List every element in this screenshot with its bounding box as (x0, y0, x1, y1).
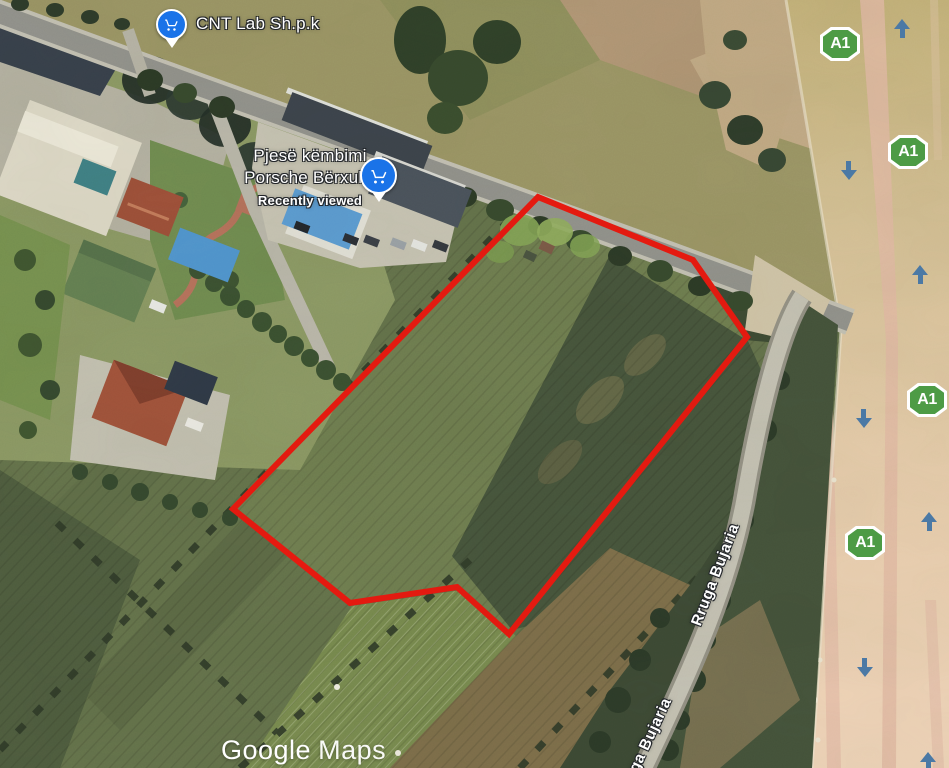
noise-layer (0, 0, 949, 768)
lane-arrow-down-icon (841, 159, 857, 180)
pin-pointer (372, 192, 386, 202)
highway-badge-a1: A1 (845, 526, 885, 560)
lane-arrow-up-icon (921, 512, 937, 533)
map-canvas[interactable]: CNT Lab Sh.p.k Pjesë këmbimi Porsche Bër… (0, 0, 949, 768)
shopping-cart-icon (360, 157, 397, 194)
pin-pointer (165, 38, 179, 48)
highway-badge-a1: A1 (820, 27, 860, 61)
place-label-cnt-lab[interactable]: CNT Lab Sh.p.k (196, 14, 319, 34)
shopping-cart-icon (156, 9, 187, 40)
watermark-product: Maps (318, 735, 386, 765)
watermark-brand: Google (221, 735, 311, 765)
lane-arrow-up-icon (912, 265, 928, 286)
satellite-imagery (0, 0, 949, 768)
porsche-pin[interactable] (360, 157, 397, 202)
cnt-lab-pin[interactable] (156, 9, 187, 48)
google-maps-watermark: GoogleMaps (221, 735, 386, 766)
lane-arrow-down-icon (857, 656, 873, 677)
highway-badge-a1: A1 (888, 135, 928, 169)
lane-arrow-up-icon (894, 19, 910, 40)
lane-arrow-down-icon (856, 407, 872, 428)
lane-arrow-up-icon (920, 752, 936, 768)
highway-badge-a1: A1 (907, 383, 947, 417)
